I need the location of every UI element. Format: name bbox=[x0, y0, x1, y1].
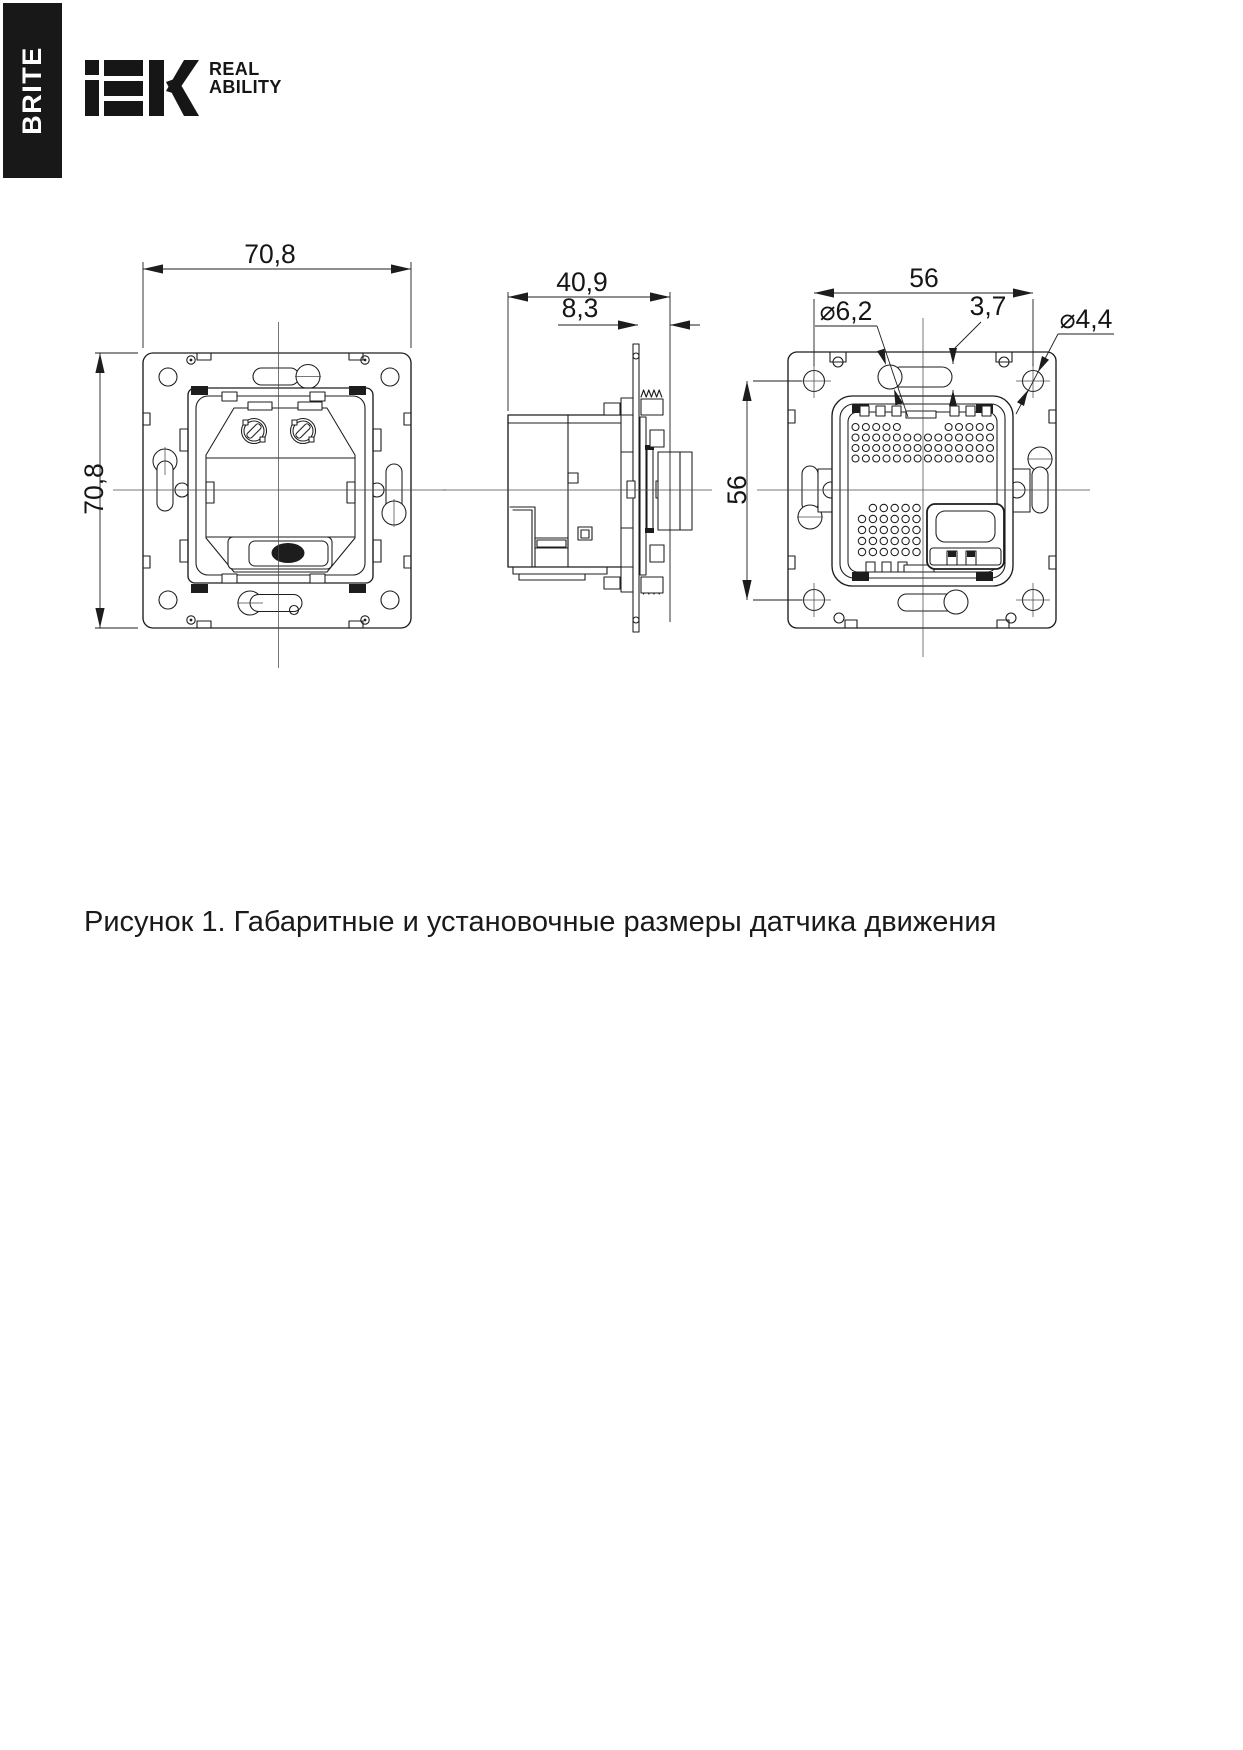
brite-series-banner: BRITE bbox=[3, 3, 62, 178]
tagline-line-1: REAL bbox=[209, 60, 282, 78]
dimension-drawing: 70,8 70,8 bbox=[0, 230, 1243, 710]
brand-tagline: REAL ABILITY bbox=[209, 60, 282, 96]
rear-keyhole-diameter-label: ⌀6,2 bbox=[820, 296, 873, 326]
iek-logo-glyphs bbox=[85, 60, 199, 116]
front-view-drawing: 70,8 70,8 bbox=[79, 239, 446, 668]
rear-view-drawing: 56 56 ⌀6,2 3,7 ⌀4,4 bbox=[722, 263, 1114, 657]
rear-slot-width-label: 3,7 bbox=[970, 291, 1007, 321]
side-view-drawing: 40,9 8,3 bbox=[443, 267, 712, 632]
figure-caption: Рисунок 1. Габаритные и установочные раз… bbox=[84, 906, 996, 939]
front-width-dimension: 70,8 bbox=[244, 239, 296, 269]
rear-width-dimension: 56 bbox=[909, 263, 938, 293]
tagline-line-2: ABILITY bbox=[209, 78, 282, 96]
front-height-dimension: 70,8 bbox=[79, 463, 109, 515]
manual-page: BRITE REAL ABILITY bbox=[0, 0, 1243, 1750]
series-label: BRITE bbox=[17, 46, 48, 135]
rear-label-plate bbox=[927, 504, 1004, 569]
side-offset-dimension: 8,3 bbox=[562, 293, 599, 323]
rear-height-dimension: 56 bbox=[722, 475, 752, 504]
rear-hole-diameter-label: ⌀4,4 bbox=[1060, 304, 1113, 334]
iek-logo bbox=[83, 56, 205, 120]
